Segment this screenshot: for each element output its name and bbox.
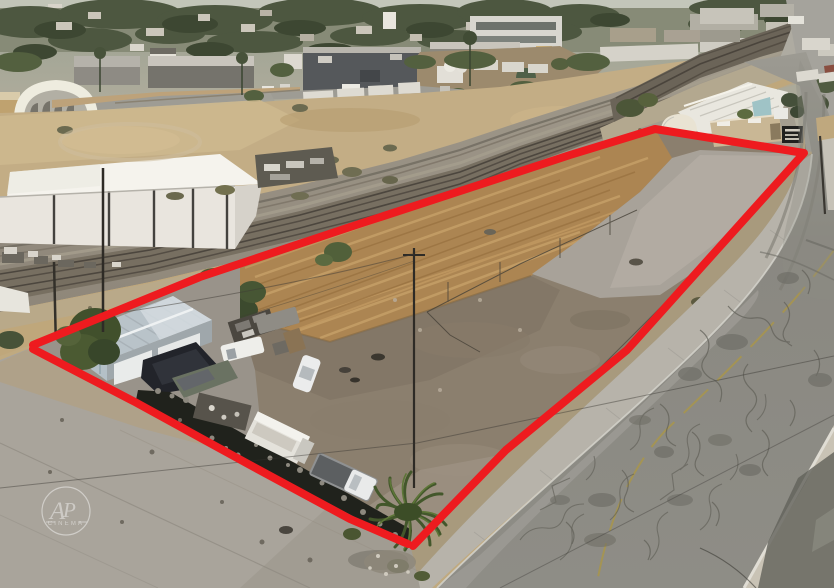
svg-text:CINEMA: CINEMA	[48, 521, 85, 527]
svg-text:P: P	[62, 498, 76, 522]
